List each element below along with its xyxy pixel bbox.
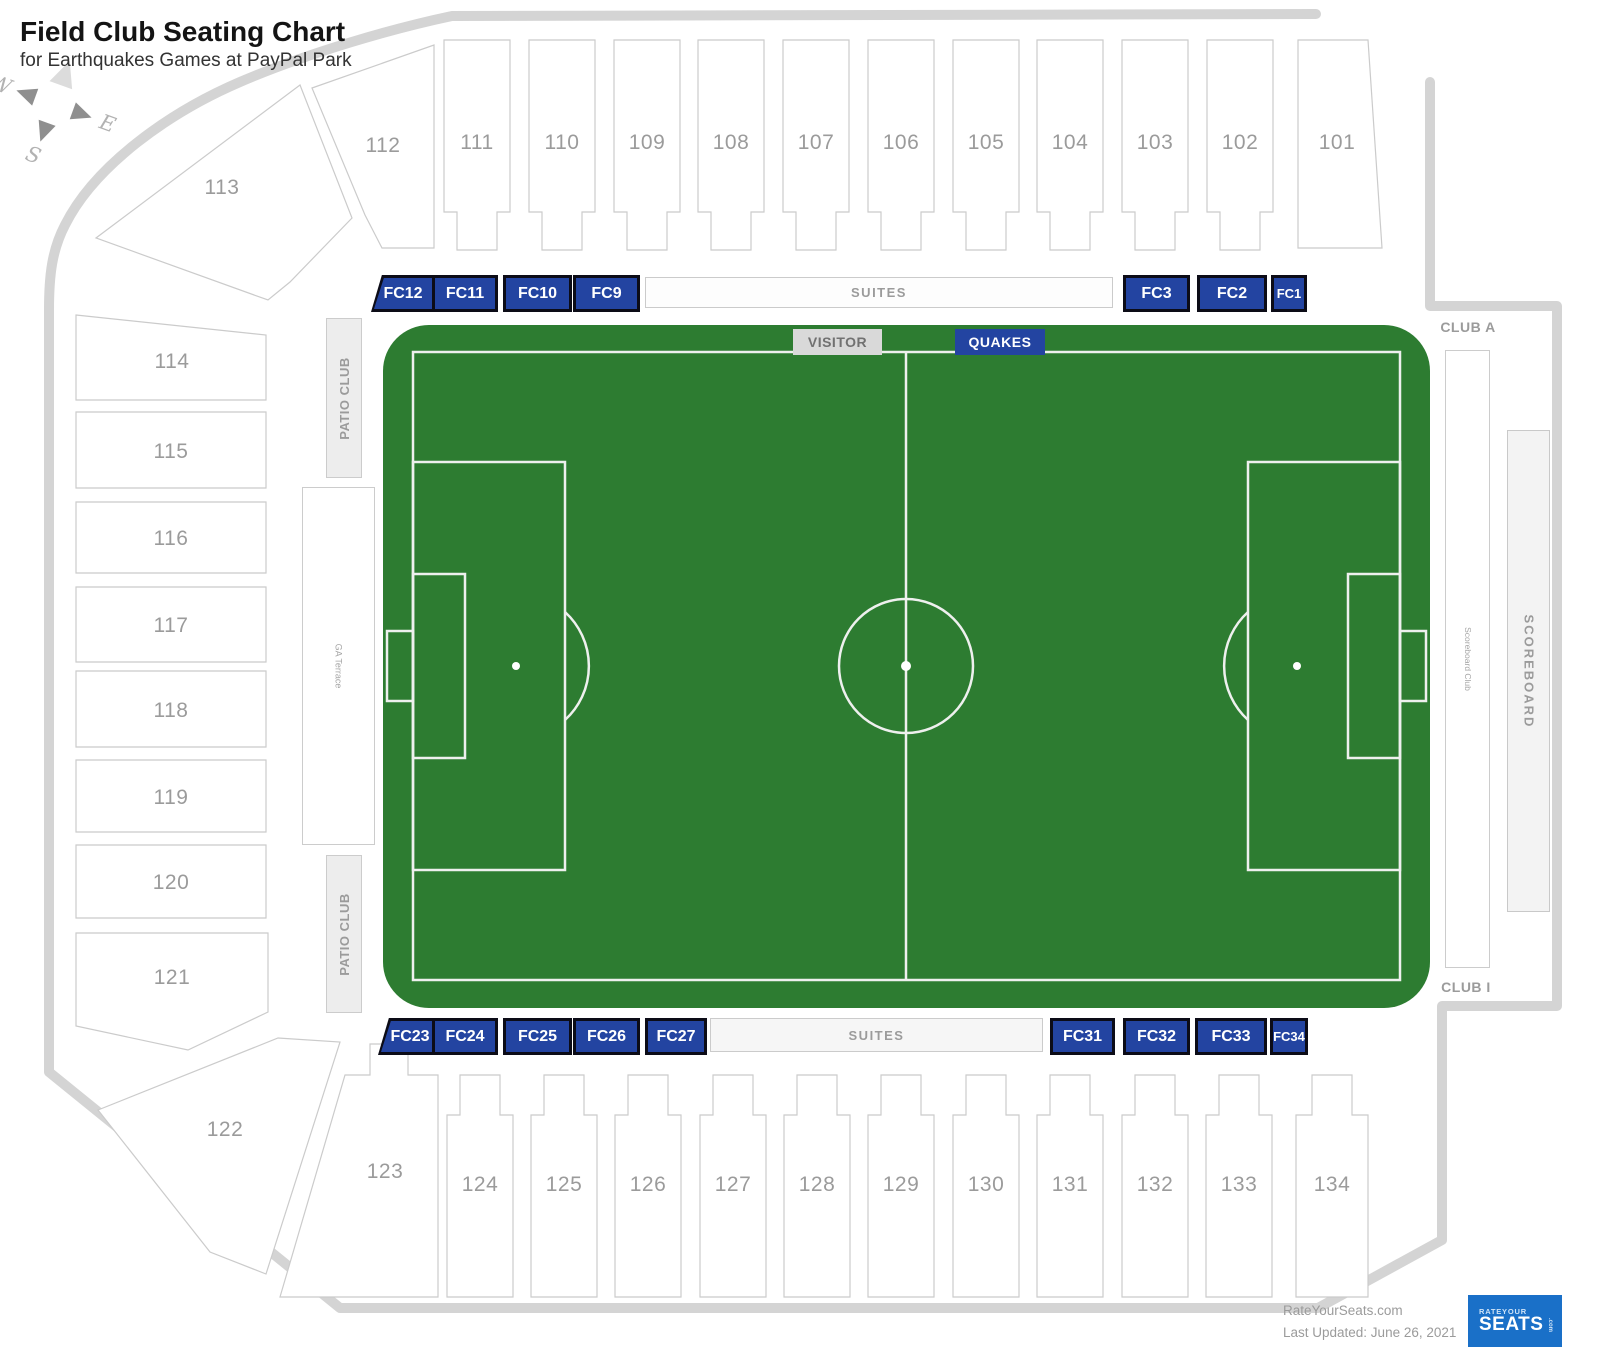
- penalty-spot-left: [512, 662, 520, 670]
- stand-section-label: 120: [153, 871, 190, 895]
- stand-section-label: 106: [883, 131, 920, 155]
- compass-south-arrow: [32, 120, 56, 145]
- stand-section-label: 103: [1137, 131, 1174, 155]
- seating-chart: W E S Field Club Seating Chart for Earth…: [0, 0, 1600, 1358]
- compass-west-arrow: [13, 82, 38, 106]
- field-club-box[interactable]: FC24: [432, 1018, 498, 1055]
- field-club-box[interactable]: FC9: [573, 275, 640, 312]
- penalty-spot-right: [1293, 662, 1301, 670]
- field-club-box[interactable]: FC25: [503, 1018, 572, 1055]
- field-club-box[interactable]: FC33: [1195, 1018, 1267, 1055]
- scoreboard: SCOREBOARD: [1507, 430, 1550, 912]
- stand-section-label: 107: [798, 131, 835, 155]
- stand-section-label: 101: [1319, 131, 1356, 155]
- field-club-box[interactable]: FC10: [503, 275, 572, 312]
- stand-section-label: 130: [968, 1173, 1005, 1197]
- field-club-box[interactable]: FC26: [573, 1018, 640, 1055]
- field-club-box[interactable]: FC3: [1123, 275, 1190, 312]
- stand-section-label: 128: [799, 1173, 836, 1197]
- stand-section-label: 118: [154, 699, 189, 723]
- stand-section-label: 117: [154, 614, 189, 638]
- stand-section-label: 115: [154, 440, 189, 464]
- stand-section-label: 131: [1052, 1173, 1089, 1197]
- compass-south-label: S: [22, 141, 44, 168]
- soccer-pitch: [383, 325, 1430, 1008]
- footer-site[interactable]: RateYourSeats.com: [1283, 1300, 1456, 1322]
- stand-section-label: 112: [366, 134, 401, 158]
- stand-section-label: 113: [205, 176, 240, 200]
- stand-section-label: 108: [713, 131, 750, 155]
- stand-section-label: 129: [883, 1173, 920, 1197]
- stand-section-label: 122: [207, 1118, 244, 1142]
- stand-section-label: 104: [1052, 131, 1089, 155]
- compass-west-label: W: [0, 70, 17, 101]
- field-club-box[interactable]: FC34: [1270, 1018, 1308, 1055]
- stand-section-label: 110: [545, 131, 580, 155]
- stand-section-label: 121: [154, 966, 191, 990]
- ga-terrace-label: GA Terrace: [333, 644, 343, 689]
- visitor-bench-label: VISITOR: [793, 329, 882, 355]
- patio-club-upper[interactable]: PATIO CLUB: [326, 318, 362, 478]
- stand-section-label: 127: [715, 1173, 752, 1197]
- ga-terrace[interactable]: GA Terrace: [302, 487, 375, 845]
- stand-section-label: 114: [155, 350, 190, 374]
- stand-section-label: 126: [630, 1173, 667, 1197]
- stand-section-label: 125: [546, 1173, 583, 1197]
- club-a-label: CLUB A: [1423, 319, 1513, 335]
- page-subtitle: for Earthquakes Games at PayPal Park: [20, 50, 352, 72]
- scoreboard-club[interactable]: Scoreboard Club: [1445, 350, 1490, 968]
- logo-seats-text: SEATS: [1479, 1315, 1543, 1334]
- club-i-label: CLUB I: [1421, 979, 1511, 995]
- stand-section-label: 116: [154, 527, 189, 551]
- compass-east-arrow: [70, 102, 95, 126]
- stand-section-label: 109: [629, 131, 666, 155]
- stand-section[interactable]: [76, 933, 268, 1050]
- chart-canvas: W E S: [0, 0, 1600, 1358]
- stand-section-label: 123: [367, 1160, 404, 1184]
- field-club-box[interactable]: FC31: [1050, 1018, 1115, 1055]
- rateyourseats-logo[interactable]: RATEYOUR SEATS .com: [1468, 1295, 1562, 1347]
- field-club-box[interactable]: FC32: [1123, 1018, 1190, 1055]
- field-club-box[interactable]: FC12: [371, 275, 435, 312]
- stand-section-label: 105: [968, 131, 1005, 155]
- patio-club-lower-label: PATIO CLUB: [337, 893, 352, 976]
- logo-com-text: .com: [1547, 1318, 1553, 1332]
- patio-club-lower[interactable]: PATIO CLUB: [326, 855, 362, 1013]
- field-club-box[interactable]: FC27: [645, 1018, 707, 1055]
- suites-top[interactable]: SUITES: [645, 277, 1113, 308]
- stand-section-label: 124: [462, 1173, 499, 1197]
- page-title: Field Club Seating Chart: [20, 16, 345, 48]
- scoreboard-label: SCOREBOARD: [1521, 614, 1536, 728]
- footer-credits: RateYourSeats.com Last Updated: June 26,…: [1283, 1300, 1456, 1343]
- field-club-box[interactable]: FC1: [1271, 275, 1307, 312]
- stand-section-label: 119: [154, 786, 189, 810]
- stand-section-label: 102: [1222, 131, 1259, 155]
- scoreboard-club-label: Scoreboard Club: [1463, 627, 1473, 691]
- field-club-label: FC12: [374, 278, 432, 309]
- stand-section-label: 133: [1221, 1173, 1258, 1197]
- suites-bottom[interactable]: SUITES: [710, 1018, 1043, 1052]
- patio-club-upper-label: PATIO CLUB: [337, 357, 352, 440]
- center-spot: [901, 661, 911, 671]
- stand-section-label: 134: [1314, 1173, 1351, 1197]
- compass-east-label: E: [95, 109, 119, 137]
- quakes-bench-label: QUAKES: [955, 329, 1045, 355]
- stand-section-label: 132: [1137, 1173, 1174, 1197]
- footer-updated: Last Updated: June 26, 2021: [1283, 1322, 1456, 1344]
- field-club-box[interactable]: FC2: [1197, 275, 1267, 312]
- field-club-box[interactable]: FC11: [432, 275, 498, 312]
- stand-section-label: 111: [460, 131, 493, 155]
- field-club-label: FC23: [381, 1021, 439, 1052]
